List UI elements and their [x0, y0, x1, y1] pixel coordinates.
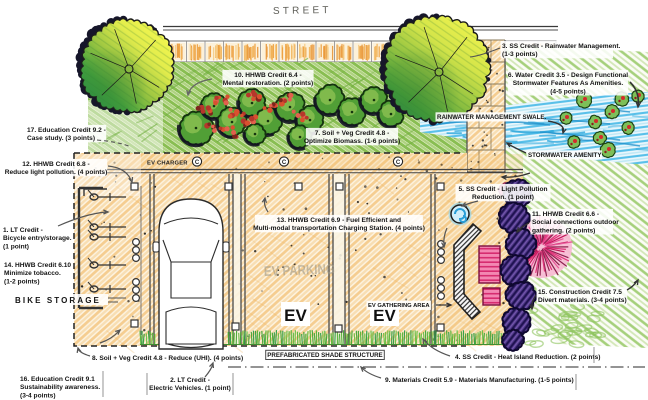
svg-text:C: C [195, 160, 200, 166]
svg-text:Social connections outdoor: Social connections outdoor [532, 219, 619, 226]
svg-text:Stormwater Features As Ameniti: Stormwater Features As Amenities. [513, 80, 624, 87]
svg-text:Sustainability awareness.: Sustainability awareness. [20, 384, 100, 391]
svg-text:EV PARKING: EV PARKING [264, 261, 336, 279]
svg-text:17. Education Credit 9.2 -: 17. Education Credit 9.2 - [27, 127, 106, 134]
svg-text:Reduction. (1 point): Reduction. (1 point) [472, 194, 534, 201]
svg-text:RAINWATER MANAGEMENT SWALE.: RAINWATER MANAGEMENT SWALE. [437, 114, 546, 121]
svg-text:gathering. (2 points): gathering. (2 points) [532, 227, 595, 234]
svg-text:14. HHWB Credit 6.10: 14. HHWB Credit 6.10 [4, 262, 71, 269]
svg-text:STREET: STREET [273, 5, 332, 17]
svg-text:(1-2 points): (1-2 points) [4, 278, 40, 285]
svg-text:Bicycle entry/storage.: Bicycle entry/storage. [3, 235, 72, 242]
svg-text:Minimize tobacco.: Minimize tobacco. [4, 270, 61, 277]
svg-text:7. Soil + Veg Credit 4.8 -: 7. Soil + Veg Credit 4.8 - [315, 130, 390, 137]
svg-text:Mental restoration. (2 points): Mental restoration. (2 points) [223, 80, 314, 87]
svg-text:EV GATHERING AREA: EV GATHERING AREA [368, 303, 430, 309]
svg-text:2. LT Credit -: 2. LT Credit - [170, 377, 210, 384]
svg-text:(1 point): (1 point) [3, 243, 29, 250]
svg-text:1. LT Credit -: 1. LT Credit - [3, 227, 43, 234]
svg-text:11. HHWB Credit 6.6 -: 11. HHWB Credit 6.6 - [532, 211, 599, 218]
svg-text:13. HHWB Credit 6.9 - Fuel Eff: 13. HHWB Credit 6.9 - Fuel Efficient and [277, 217, 401, 224]
svg-text:Divert materials. (3-4 points): Divert materials. (3-4 points) [538, 297, 627, 304]
svg-text:(1-3 points): (1-3 points) [502, 51, 538, 58]
svg-text:5. SS Credit - Light Pollution: 5. SS Credit - Light Pollution [458, 186, 547, 193]
svg-text:Electric Vehicles. (1 point): Electric Vehicles. (1 point) [149, 385, 231, 392]
svg-text:12. HHWB Credit 6.8 -: 12. HHWB Credit 6.8 - [22, 161, 89, 168]
svg-text:15. Construction Credit 7.5: 15. Construction Credit 7.5 [538, 289, 622, 296]
svg-text:EV CHARGER: EV CHARGER [147, 161, 188, 167]
svg-text:Reduce light pollution. (4 poi: Reduce light pollution. (4 points) [5, 169, 108, 176]
svg-text:9. Materials Credit 5.9 - Mate: 9. Materials Credit 5.9 - Materials Manu… [385, 377, 574, 384]
svg-text:BIKE STORAGE: BIKE STORAGE [15, 296, 101, 305]
svg-text:3. SS Credit - Rainwater Manag: 3. SS Credit - Rainwater Management. [502, 43, 621, 50]
svg-text:(4-5 points): (4-5 points) [550, 88, 586, 95]
svg-text:6. Water Credit 3.5 - Design F: 6. Water Credit 3.5 - Design Functional [508, 72, 628, 79]
svg-text:STORMWATER AMENITY: STORMWATER AMENITY [528, 152, 602, 159]
svg-text:PREFABRICATED SHADE STRUCTURE: PREFABRICATED SHADE STRUCTURE [267, 352, 382, 359]
svg-text:Optimize Biomass. (1-6 points): Optimize Biomass. (1-6 points) [304, 138, 400, 145]
svg-text:(3-4 points): (3-4 points) [20, 392, 56, 399]
svg-text:10. HHWB Credit 6.4 -: 10. HHWB Credit 6.4 - [234, 72, 301, 79]
svg-text:EV: EV [284, 306, 307, 325]
svg-text:Multi-modal transportation Cha: Multi-modal transportation Charging Stat… [253, 225, 425, 232]
svg-text:Case study. (3 points): Case study. (3 points) [27, 135, 95, 142]
svg-text:4. SS Credit - Heat Island Red: 4. SS Credit - Heat Island Reduction. (2… [455, 354, 600, 361]
svg-text:C: C [282, 160, 287, 166]
svg-text:8. Soil + Veg Credit 4.8 - Red: 8. Soil + Veg Credit 4.8 - Reduce (UHI).… [92, 355, 243, 362]
svg-text:C: C [396, 160, 401, 166]
svg-text:16. Education Credit 9.1: 16. Education Credit 9.1 [20, 376, 95, 383]
